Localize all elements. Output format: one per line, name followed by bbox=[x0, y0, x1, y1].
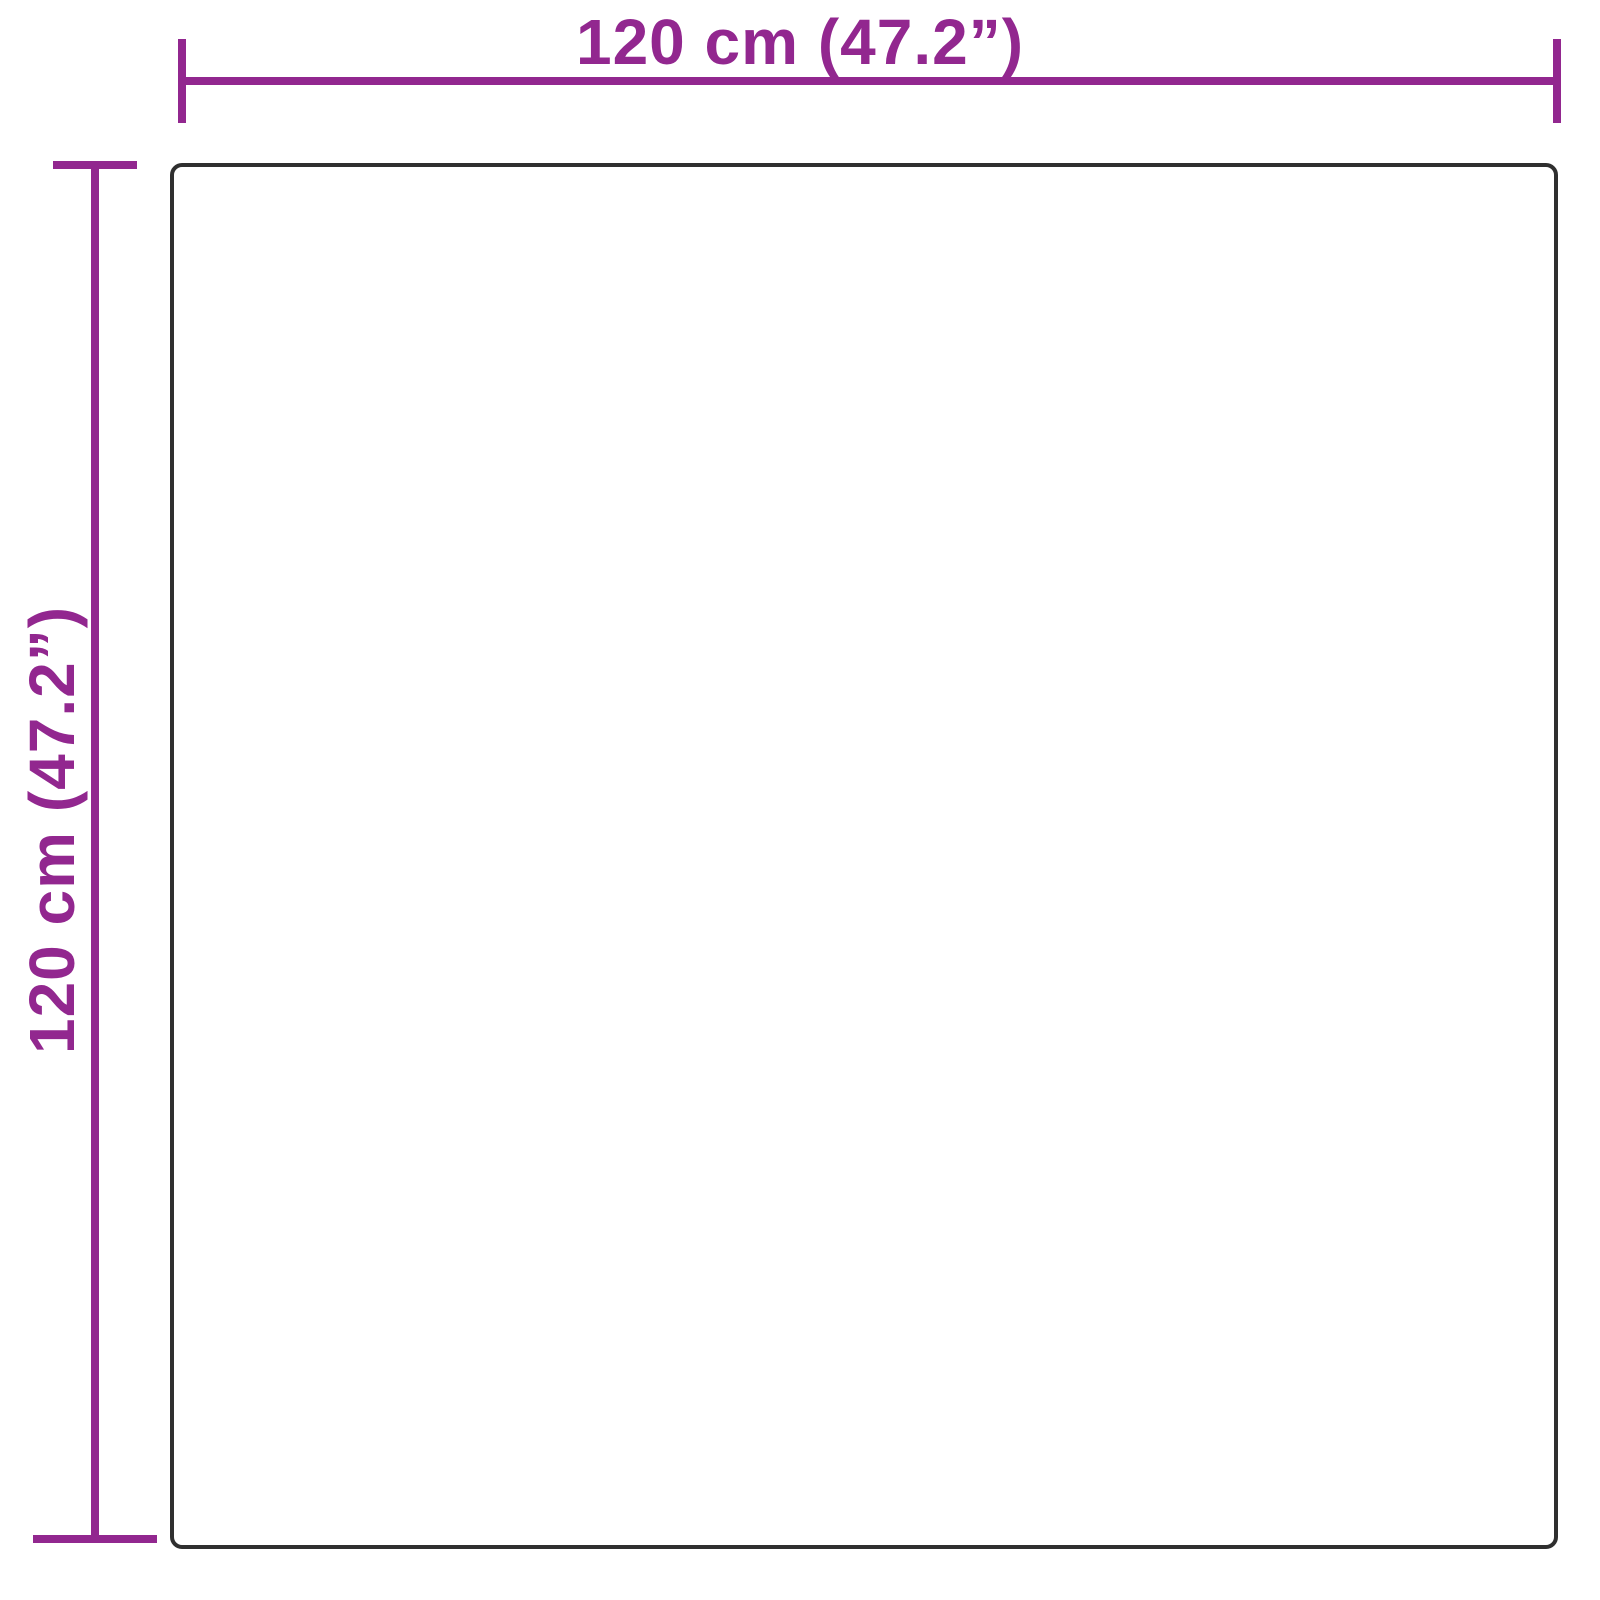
product-outline-square bbox=[170, 163, 1558, 1549]
height-dimension-tick-top bbox=[53, 161, 137, 169]
dimension-diagram: 120 cm (47.2”) 120 cm (47.2”) bbox=[0, 0, 1600, 1600]
height-dimension-tick-bottom bbox=[33, 1535, 157, 1543]
width-dimension-line bbox=[178, 77, 1561, 85]
height-dimension-line bbox=[91, 161, 99, 1543]
height-dimension-label: 120 cm (47.2”) bbox=[18, 430, 86, 1230]
width-dimension-label: 120 cm (47.2”) bbox=[0, 8, 1600, 76]
